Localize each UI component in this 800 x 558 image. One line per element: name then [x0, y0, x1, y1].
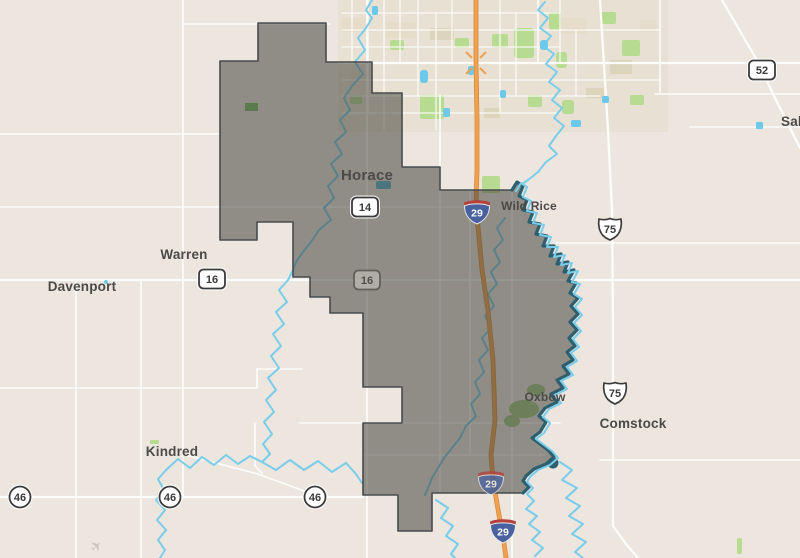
svg-text:46: 46 [164, 492, 176, 504]
label-davenport: Davenport [48, 279, 117, 294]
shield-county-16-west: 16 [199, 270, 225, 289]
svg-text:75: 75 [604, 224, 616, 236]
label-warren: Warren [160, 247, 207, 262]
svg-text:75: 75 [609, 388, 621, 400]
label-sabin-clipped: Sab [781, 114, 800, 129]
shield-county-46-b: 46 [160, 487, 181, 508]
green-patch-inside-boundary [245, 103, 258, 111]
label-oxbow: Oxbow [524, 390, 565, 404]
label-wild-rice: Wild Rice [501, 199, 557, 213]
oxbow-golf-green-3 [504, 415, 520, 427]
shield-county-46-a: 46 [10, 487, 31, 508]
svg-text:14: 14 [359, 202, 372, 214]
map-viewport[interactable]: ✈ 14 16 16 52 46 46 46 75 75 [0, 0, 800, 558]
svg-text:52: 52 [756, 65, 768, 77]
shield-county-52: 52 [749, 61, 775, 80]
svg-text:16: 16 [206, 274, 218, 286]
svg-text:29: 29 [497, 527, 509, 539]
svg-text:29: 29 [471, 208, 483, 220]
label-kindred: Kindred [146, 444, 198, 459]
svg-text:29: 29 [485, 479, 497, 491]
shield-county-46-c: 46 [305, 487, 326, 508]
label-comstock: Comstock [600, 416, 667, 431]
label-horace: Horace [341, 167, 393, 184]
svg-text:46: 46 [309, 492, 321, 504]
map-canvas: ✈ 14 16 16 52 46 46 46 75 75 [0, 0, 800, 558]
svg-text:46: 46 [14, 492, 26, 504]
svg-text:16: 16 [361, 275, 373, 287]
shield-county-14: 14 [352, 198, 378, 217]
shield-county-16-east: 16 [354, 271, 380, 290]
